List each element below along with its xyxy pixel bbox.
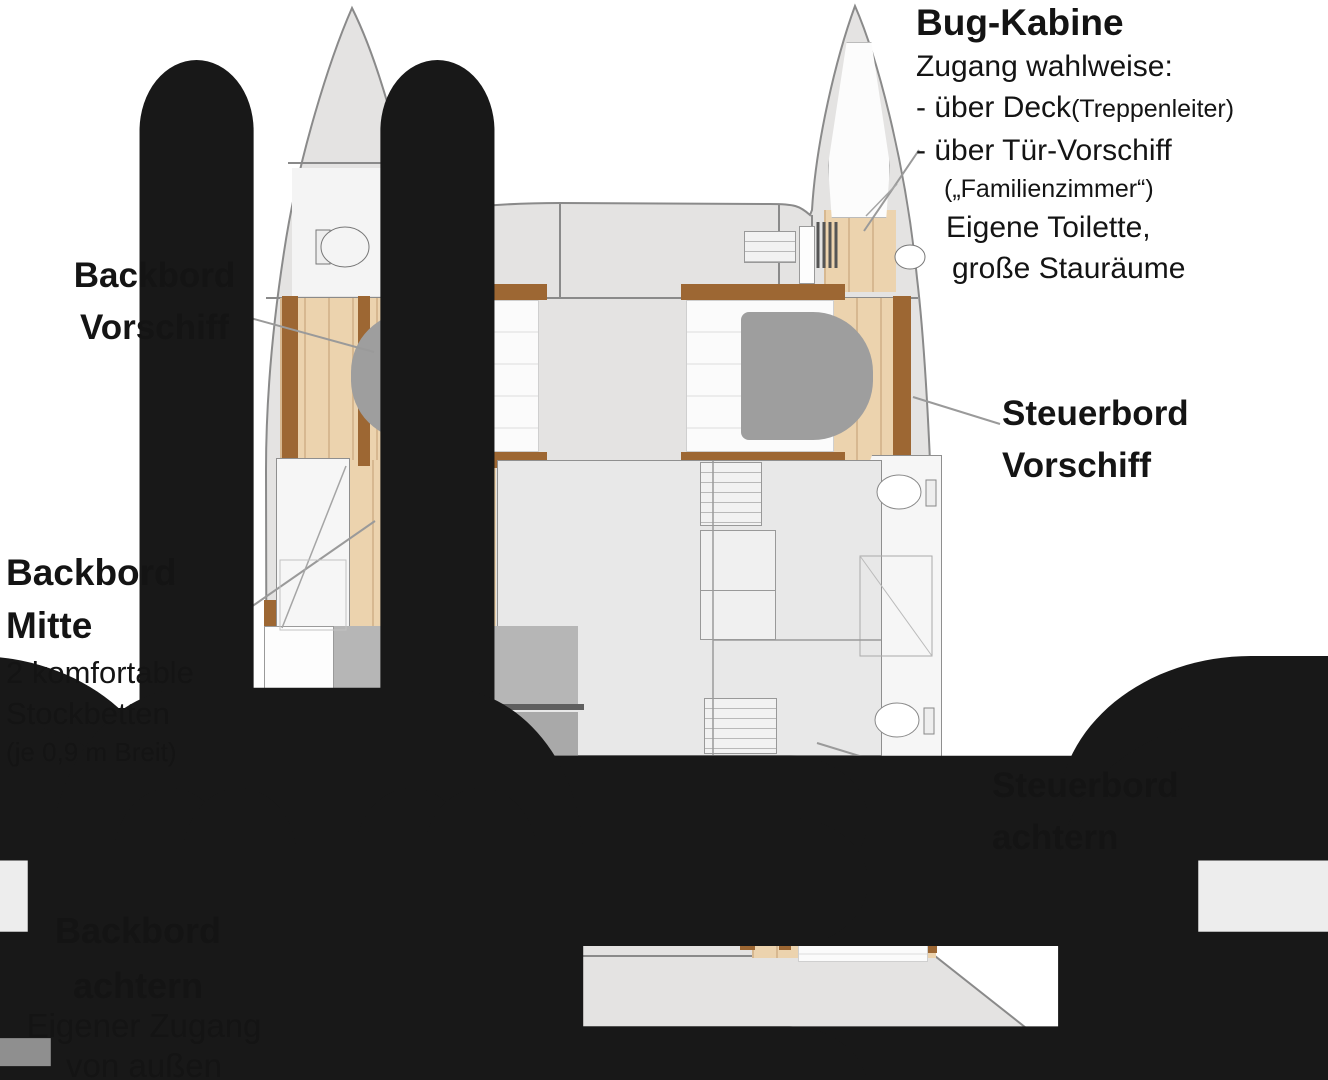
bed-starboard-forecabin-headboard — [741, 312, 873, 440]
label-bug-kabine: Bug-Kabine Zugang wahlweise: - über Deck… — [916, 0, 1328, 289]
bug-kabine-familienzimmer: („Familienzimmer“) — [916, 171, 1328, 207]
cabinet-drawers-4 — [704, 698, 777, 754]
label-backbord-achtern: Backbord achtern — [28, 903, 248, 1013]
bathroom-port-aft — [283, 826, 397, 988]
bunk-divider — [262, 704, 584, 710]
cabinet-deck-drawers — [744, 231, 796, 263]
bug-kabine-toilette: Eigene Toilette, — [916, 207, 1328, 248]
bedframe-starboard-top — [681, 284, 845, 300]
cabinet-drawers-1 — [429, 464, 492, 500]
trim-starboard-forecabin-right — [893, 296, 911, 462]
bug-kabine-zugang: Zugang wahlweise: — [916, 46, 1328, 87]
bathroom-port-mid — [276, 458, 350, 632]
trim-port-forecabin-left — [282, 296, 298, 466]
trim-stern-bed-left2 — [779, 770, 791, 950]
bug-kabine-tuer: - über Tür-Vorschiff — [916, 130, 1328, 171]
bug-kabine-deck: - über Deck(Treppenleiter) — [916, 87, 1328, 130]
bunk1-nightstand — [264, 626, 334, 704]
bathroom-bow-port — [292, 168, 402, 296]
wardrobe-port-aft — [428, 820, 480, 914]
label-backbord-vorschiff: Backbord Vorschiff — [52, 250, 257, 354]
label-backbord-mitte: Backbord Mitte 2 komfortable Stockbetten… — [6, 546, 194, 770]
catamaran-deck-plan: Bug-Kabine Zugang wahlweise: - über Deck… — [0, 0, 1328, 1080]
bug-kabine-title: Bug-Kabine — [916, 0, 1328, 46]
bedframe-port-top — [383, 284, 547, 300]
bunk1-bed — [334, 626, 578, 704]
label-backbord-achtern-desc: Eigener Zugang von außen — [0, 1006, 288, 1080]
bunk2-nightstand — [264, 712, 334, 824]
bed-port-forecabin-headboard — [351, 312, 483, 440]
label-steuerbord-vorschiff: Steuerbord Vorschiff — [1002, 388, 1189, 492]
bow-cabin-storage — [799, 226, 815, 284]
cabinet-drawers-3 — [700, 462, 762, 526]
bed-starboard-aft — [798, 858, 928, 962]
leader-steuerbord-vorschiff — [913, 397, 1000, 424]
floor-salon-edge — [430, 502, 492, 568]
bug-kabine-stauraeume: große Stauräume — [916, 248, 1328, 289]
floor-bow-cabin — [824, 210, 896, 292]
cabinet-drawers-5 — [430, 916, 482, 956]
label-steuerbord-achtern: Steuerbord achtern — [992, 760, 1179, 864]
bed-bow-cabin — [828, 42, 890, 218]
trim-stern-bed-left1 — [740, 853, 755, 950]
bunk2-bed — [334, 712, 578, 824]
cabinet-wardrobe-starboard — [700, 530, 776, 640]
